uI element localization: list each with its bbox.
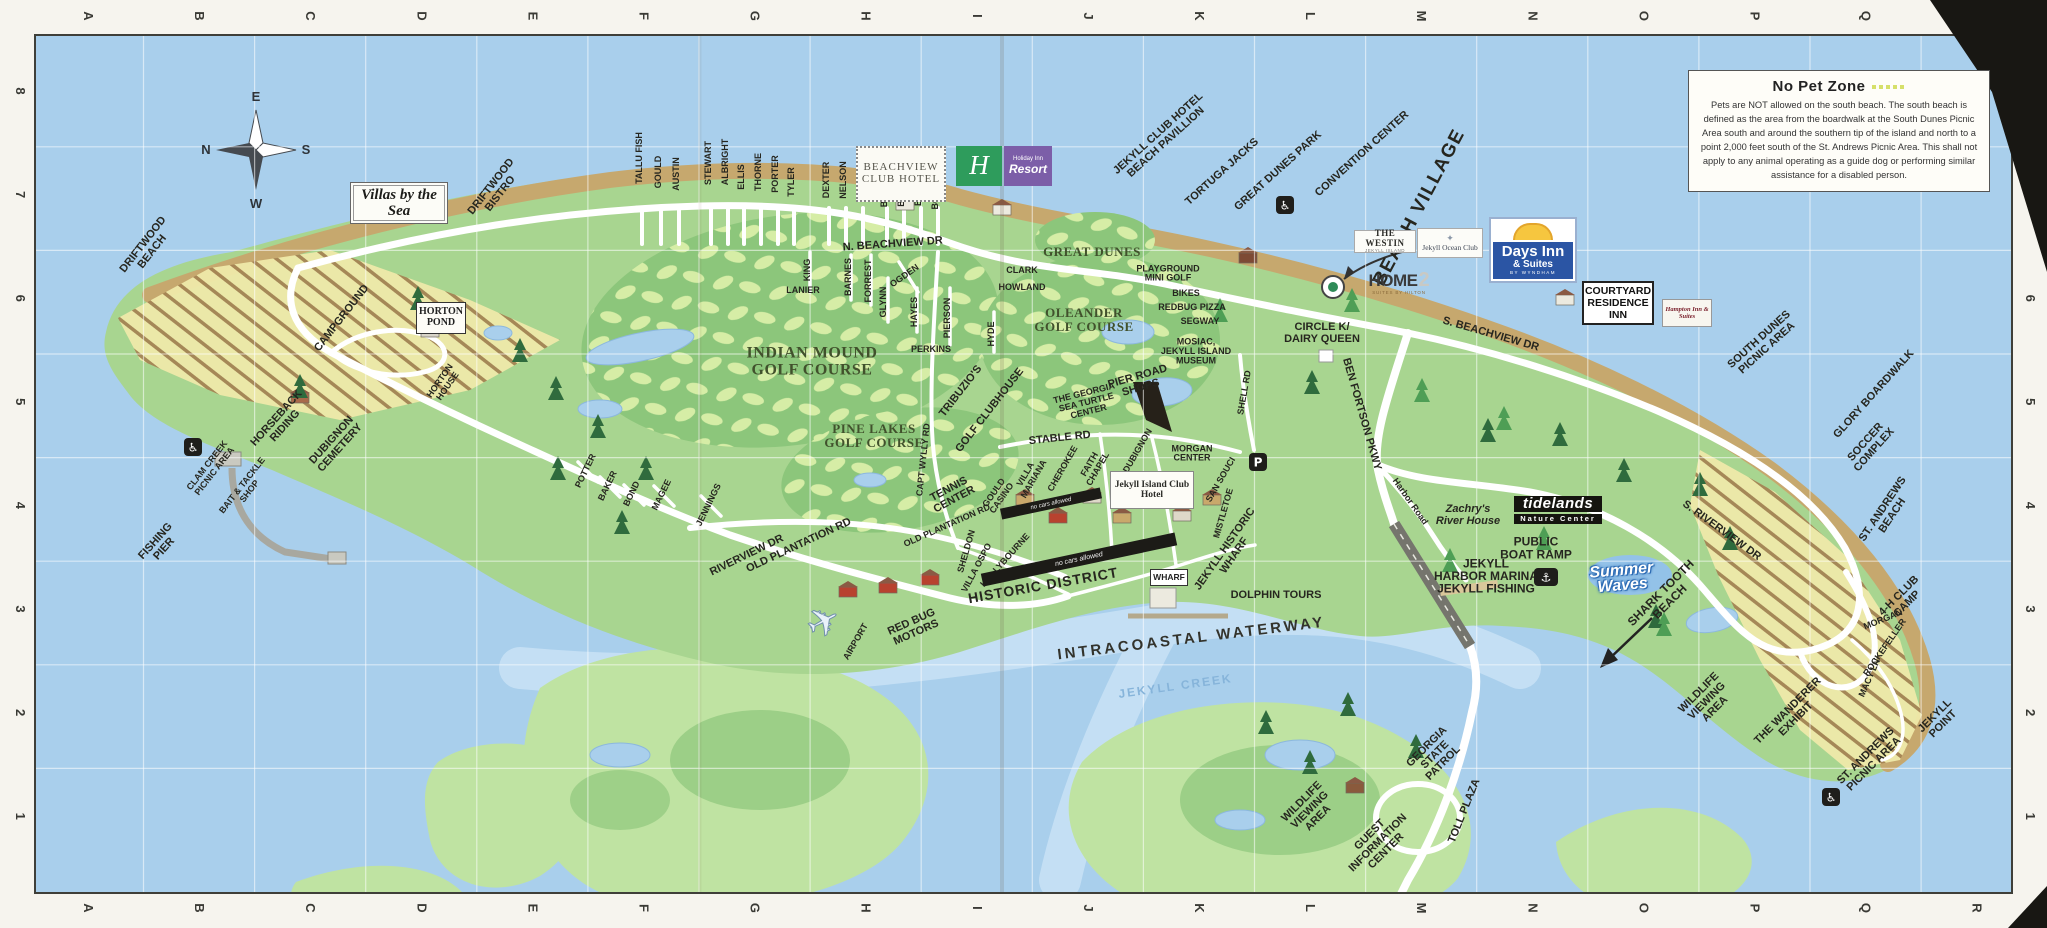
svg-text:♿: ♿	[188, 441, 199, 455]
grid-column-A: A	[81, 11, 96, 21]
grid-column-G: G	[748, 11, 763, 21]
wheelchair-icon: ♿	[1822, 788, 1840, 806]
label-king: KING	[802, 259, 812, 282]
label-hayes: HAYES	[909, 297, 919, 327]
grid-row-8: 8	[13, 87, 28, 94]
label-oleander-golf-course: OLEANDERGOLF COURSE	[1034, 305, 1133, 334]
label-glynn: GLYNN	[878, 287, 888, 318]
grid-column-E: E	[525, 12, 540, 21]
label-clark: CLARK	[1006, 265, 1038, 275]
grid-column-L: L	[1303, 12, 1318, 20]
grid-column-B: B	[192, 903, 207, 912]
label-pine-lakes-golf-course: PINE LAKESGOLF COURSE	[824, 421, 923, 450]
label-circle-k-dairy-queen: CIRCLE K/DAIRY QUEEN	[1284, 321, 1360, 345]
grid-column-F: F	[637, 904, 652, 912]
label-perkins: PERKINS	[911, 344, 951, 354]
label-n: N	[201, 142, 210, 157]
parking-icon: P	[1249, 453, 1267, 471]
label-barron: BARRON	[896, 167, 906, 207]
label-king: KING	[855, 179, 865, 202]
grid-column-J: J	[1081, 904, 1096, 911]
grid-column-Q: Q	[1859, 903, 1874, 913]
grid-column-N: N	[1525, 903, 1540, 912]
grid-column-M: M	[1414, 903, 1429, 914]
map-canvas: NESWDRIFTWOODBEACHDRIFTWOODBISTROCAMPGRO…	[0, 0, 2047, 928]
label-tallu-fish: TALLU FISH	[634, 132, 644, 184]
grid-column-A: A	[81, 903, 96, 913]
label-playground-mini-golf: PLAYGROUNDMINI GOLF	[1136, 263, 1200, 282]
grid-column-J: J	[1081, 12, 1096, 19]
label-borden: BORDEN	[930, 170, 940, 209]
label-redbug-pizza: REDBUG PIZZA	[1158, 302, 1226, 312]
grid-row-2: 2	[2023, 709, 2038, 716]
label-forrest: FORREST	[863, 259, 873, 303]
label-e: E	[252, 89, 261, 104]
grid-column-R: R	[1970, 903, 1985, 913]
grid-row-1: 1	[13, 813, 28, 820]
label-bliss: BLISS	[879, 181, 889, 208]
label-nelson: NELSON	[838, 161, 848, 199]
label-tyler: TYLER	[786, 167, 796, 197]
svg-text:♿: ♿	[1280, 199, 1291, 213]
grid-column-H: H	[859, 11, 874, 20]
wheelchair-icon: ♿	[184, 438, 202, 456]
jekyll-island-map: NESWDRIFTWOODBEACHDRIFTWOODBISTROCAMPGRO…	[0, 0, 2047, 928]
grid-column-C: C	[303, 903, 318, 913]
grid-column-B: B	[192, 11, 207, 20]
grid-row-1: 1	[2023, 813, 2038, 820]
boat-ramp-icon: ⚓	[1534, 568, 1558, 586]
label-pierson: PIERSON	[942, 298, 952, 339]
grid-column-K: K	[1192, 11, 1207, 21]
grid-column-Q: Q	[1859, 11, 1874, 21]
grid-column-G: G	[748, 903, 763, 913]
svg-text:P: P	[1254, 456, 1263, 470]
label-albright: ALBRIGHT	[720, 138, 730, 185]
grid-row-6: 6	[2023, 295, 2038, 302]
svg-text:⚓: ⚓	[1541, 571, 1552, 585]
label-brice: BRICE	[913, 178, 923, 206]
svg-text:♿: ♿	[1826, 791, 1837, 805]
grid-row-7: 7	[13, 191, 28, 198]
grid-column-M: M	[1414, 11, 1429, 22]
grid-column-D: D	[414, 11, 429, 20]
label-great-dunes: GREAT DUNES	[1043, 244, 1141, 259]
grid-column-E: E	[525, 904, 540, 913]
label-gould: GOULD	[653, 155, 663, 188]
grid-column-P: P	[1748, 904, 1763, 913]
grid-row-3: 3	[2023, 605, 2038, 612]
label-lanier: LANIER	[786, 285, 820, 295]
grid-column-D: D	[414, 903, 429, 912]
grid-column-O: O	[1636, 903, 1651, 913]
label-hyde: HYDE	[986, 321, 996, 346]
grid-column-H: H	[859, 903, 874, 912]
label-austin: AUSTIN	[671, 157, 681, 191]
grid-row-5: 5	[2023, 398, 2038, 405]
label-w: W	[250, 196, 263, 211]
label-dolphin-tours: DOLPHIN TOURS	[1231, 589, 1322, 601]
label-segway: SEGWAY	[1181, 316, 1220, 326]
grid-column-C: C	[303, 11, 318, 21]
grid-row-4: 4	[13, 502, 28, 510]
label-indian-mound-golf-course: INDIAN MOUNDGOLF COURSE	[747, 345, 878, 379]
label-porter: PORTER	[770, 155, 780, 193]
grid-column-L: L	[1303, 904, 1318, 912]
grid-column-I: I	[970, 906, 985, 910]
label-barnes: BARNES	[843, 258, 853, 296]
grid-column-O: O	[1636, 11, 1651, 21]
grid-row-3: 3	[13, 605, 28, 612]
label-morgan-center: MORGANCENTER	[1172, 443, 1213, 462]
wheelchair-icon: ♿	[1276, 196, 1294, 214]
grid-row-4: 4	[2023, 502, 2038, 510]
label-howland: HOWLAND	[999, 282, 1046, 292]
grid-column-I: I	[970, 14, 985, 18]
label-bikes: BIKES	[1172, 288, 1200, 298]
grid-column-F: F	[637, 12, 652, 20]
label-ellis: ELLIS	[736, 164, 746, 190]
label-s: S	[302, 142, 311, 157]
grid-row-6: 6	[13, 295, 28, 302]
grid-column-N: N	[1525, 11, 1540, 20]
grid-column-P: P	[1748, 12, 1763, 21]
grid-column-K: K	[1192, 903, 1207, 913]
label-stewart: STEWART	[703, 140, 713, 185]
label-thorne: THORNE	[753, 153, 763, 191]
label-dexter: DEXTER	[821, 161, 831, 198]
grid-row-5: 5	[13, 398, 28, 405]
grid-row-2: 2	[13, 709, 28, 716]
